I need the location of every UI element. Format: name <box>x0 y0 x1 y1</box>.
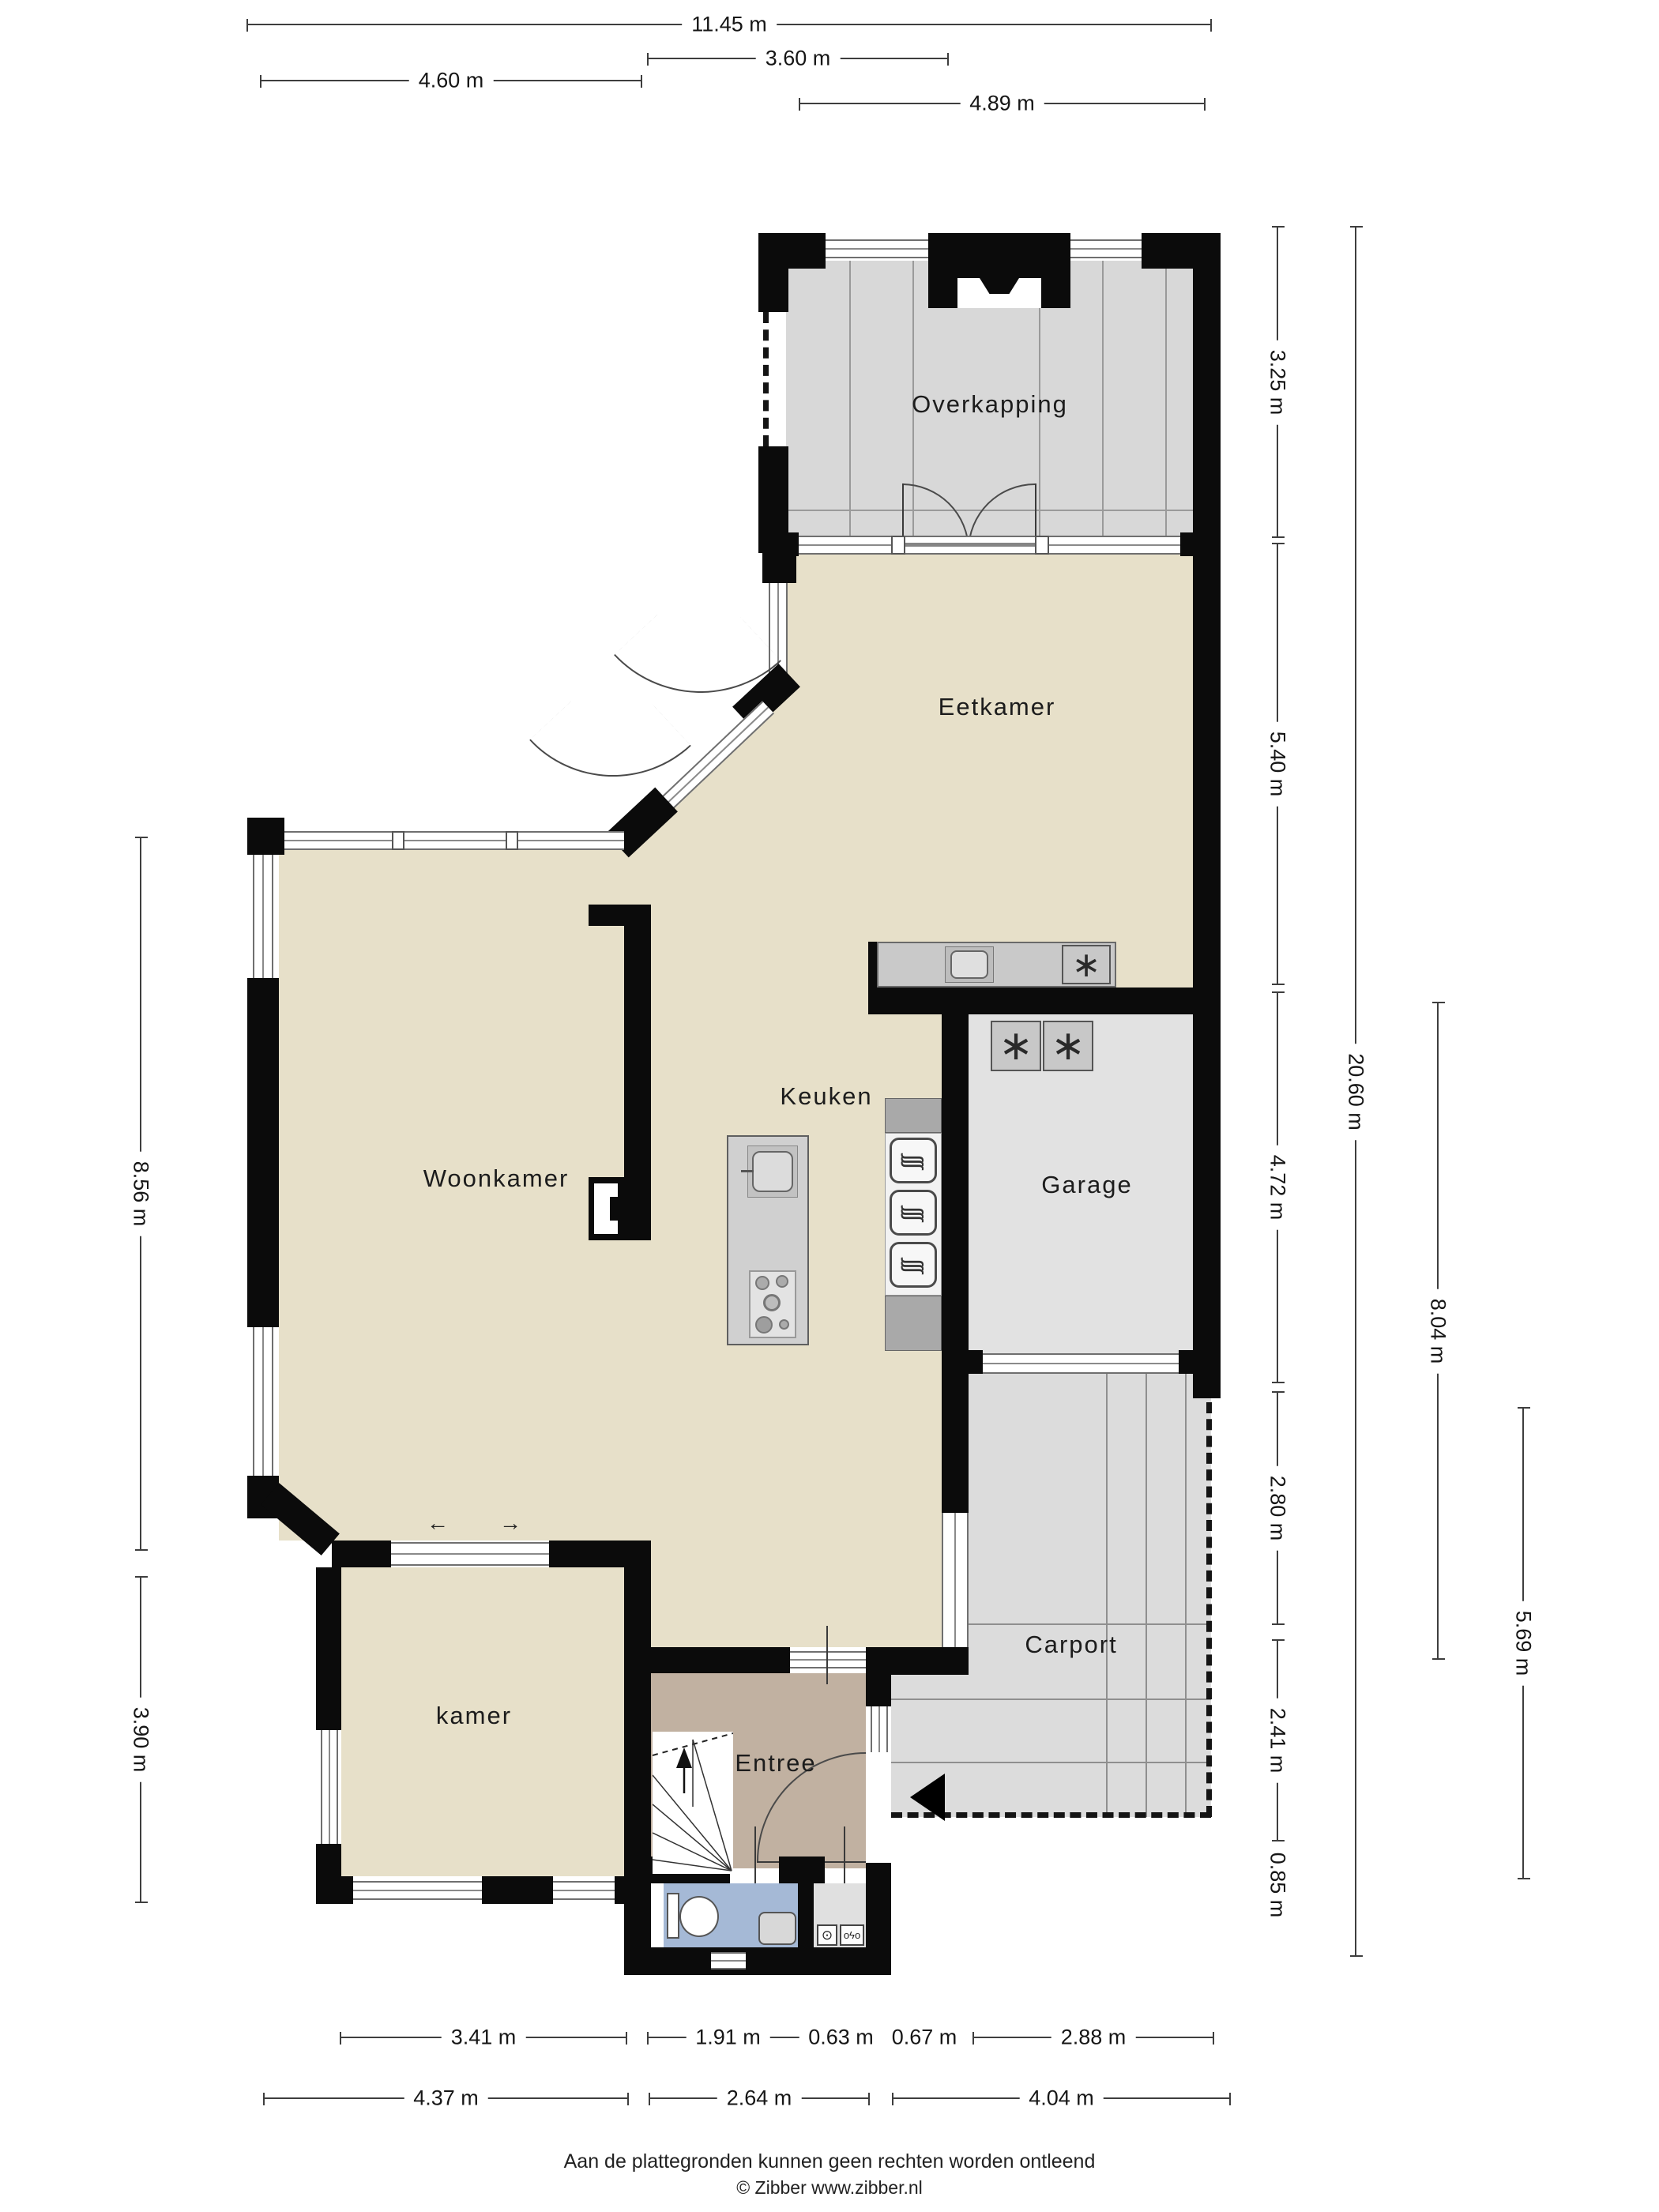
floorplan-canvas: ∗ ∫∫∫ ∫∫∫ ∫∫∫ ∗ ∗ ← → <box>0 0 1659 2212</box>
room-label-kamer: kamer <box>436 1702 512 1730</box>
paving-line <box>1145 1374 1147 1817</box>
paving-line <box>891 1762 1211 1763</box>
dim-left-856: 8.56 m <box>140 837 141 1550</box>
room-label-garage: Garage <box>1041 1171 1132 1199</box>
carport-boundary-right-dashed <box>1206 1402 1212 1817</box>
entree-south-wall <box>624 1947 891 1975</box>
appliance-cabinet-bottom <box>885 1296 942 1351</box>
kamer-south-wall-b <box>482 1876 553 1904</box>
dim-bottom-404: 4.04 m <box>893 2097 1230 2099</box>
hob-burner <box>755 1276 769 1290</box>
band-end-post-right <box>1180 532 1193 556</box>
hall-window-to-carport <box>942 1513 969 1647</box>
kamer-south-window-left <box>353 1881 482 1900</box>
dim-right-569: 5.69 m <box>1522 1408 1524 1879</box>
kamer-south-wall-a <box>316 1876 353 1904</box>
woonkamer-north-window <box>284 831 624 850</box>
island-faucet <box>741 1170 754 1172</box>
dim-bottom-264: 2.64 m <box>649 2097 869 2099</box>
staircase <box>653 1732 733 1874</box>
overkapping-window-top-right <box>1070 239 1142 258</box>
dim-bottom-191: 1.91 m <box>648 2037 808 2038</box>
room-label-carport: Carport <box>1025 1631 1117 1659</box>
eetkamer-west-post-top <box>762 544 796 583</box>
copyright-text: © Zibber www.zibber.nl <box>0 2177 1659 2199</box>
hob-burner <box>779 1319 789 1330</box>
island-sink-bowl <box>752 1151 793 1192</box>
counter-end-post <box>868 942 877 987</box>
overkapping-open-side-dashed <box>763 312 769 446</box>
band-post <box>891 536 905 555</box>
entree-north-window <box>790 1651 866 1668</box>
paving-line <box>1106 1374 1108 1817</box>
carport-floor <box>969 1374 1211 1817</box>
entree-east-window <box>871 1706 888 1752</box>
deck-line <box>849 261 851 536</box>
toilet-north-wall-b <box>779 1856 825 1883</box>
room-label-woonkamer: Woonkamer <box>423 1164 570 1193</box>
dim-right-325: 3.25 m <box>1277 227 1278 537</box>
dim-right-total: 20.60 m <box>1355 227 1356 1956</box>
paving-line <box>969 1623 1211 1625</box>
paving-line <box>1185 1374 1187 1817</box>
hob-burner <box>776 1275 788 1288</box>
extractor-icon: ∗ <box>1062 945 1111 984</box>
garage-north-wall <box>868 987 1193 1014</box>
toilet-bowl <box>679 1896 719 1937</box>
room-label-overkapping: Overkapping <box>912 390 1068 419</box>
door-tick <box>826 1626 828 1684</box>
overkapping-window-top-left <box>826 239 928 258</box>
water-meter-icon: ⊙ <box>817 1924 837 1946</box>
sliding-door-rail <box>905 543 1035 547</box>
dim-bottom-288: 2.88 m <box>973 2037 1213 2038</box>
dim-left-390: 3.90 m <box>140 1577 141 1902</box>
hob-burner <box>763 1294 781 1311</box>
dim-bottom-341: 3.41 m <box>340 2037 626 2038</box>
garage-door <box>983 1353 1179 1374</box>
electric-meter-icon: oϟo <box>840 1924 864 1946</box>
oven-icon: ∫∫∫ <box>890 1242 937 1288</box>
woonkamer-corner-nw <box>247 818 284 855</box>
appliance-cabinet-top <box>885 1098 942 1133</box>
slide-arrow-right-icon: → <box>499 1510 521 1536</box>
dim-right-085: 0.85 m <box>1277 1850 1278 1920</box>
oven-icon: ∫∫∫ <box>890 1138 937 1183</box>
dim-right-241: 2.41 m <box>1277 1640 1278 1841</box>
toilet-cistern <box>667 1893 679 1939</box>
kamer-west-wall-upper <box>316 1567 341 1730</box>
toilet-meterkast-divider <box>798 1883 814 1950</box>
fireplace-tab <box>610 1197 619 1221</box>
room-label-keuken: Keuken <box>780 1082 872 1111</box>
kamer-south-wall-c <box>615 1876 651 1904</box>
toilet-sink <box>758 1912 796 1945</box>
dryer-icon: ∗ <box>1043 1021 1093 1071</box>
dim-right-804: 8.04 m <box>1437 1003 1439 1659</box>
dim-bottom-067: 0.67 m <box>891 2037 957 2038</box>
dim-top-460: 4.60 m <box>261 80 641 81</box>
oven-icon: ∫∫∫ <box>890 1190 937 1236</box>
dim-right-280: 2.80 m <box>1277 1392 1278 1624</box>
room-label-entree: Entree <box>735 1749 816 1777</box>
dim-right-472: 4.72 m <box>1277 992 1278 1382</box>
dim-top-360: 3.60 m <box>648 58 948 59</box>
kamer-south-window-right <box>553 1881 615 1900</box>
overkapping-wall-left-lower <box>758 446 788 553</box>
entrance-arrow-icon <box>910 1774 945 1821</box>
dim-top-489: 4.89 m <box>799 103 1205 104</box>
slide-arrow-left-icon: ← <box>427 1510 449 1536</box>
window-post <box>392 831 404 850</box>
entree-east-wall-lower <box>866 1863 891 1950</box>
kamer-west-window <box>321 1730 338 1844</box>
room-label-eetkamer: Eetkamer <box>939 693 1056 721</box>
entree-east-wall-upper <box>866 1673 891 1706</box>
deck-line <box>1102 261 1104 536</box>
band-post <box>1035 536 1049 555</box>
deck-line <box>1165 261 1167 536</box>
garage-door-post-left <box>969 1350 983 1374</box>
island-hob <box>749 1270 796 1338</box>
garage-door-post-right <box>1179 1350 1193 1374</box>
toilet-door-tick <box>754 1826 756 1883</box>
kamer-sliding-door <box>391 1542 549 1566</box>
paving-line <box>891 1698 1211 1700</box>
dim-right-540: 5.40 m <box>1277 544 1278 984</box>
counter-sink-bowl <box>950 950 988 979</box>
kamer-north-wall-left <box>332 1540 391 1567</box>
dim-top-total: 11.45 m <box>247 24 1211 25</box>
toilet-vent-window <box>711 1952 746 1969</box>
outer-wall-right <box>1193 233 1221 1398</box>
woonkamer-west-wall <box>247 978 279 1327</box>
hob-burner <box>755 1316 773 1334</box>
overkapping-wall-left-upper <box>758 233 788 312</box>
dim-bottom-063: 0.63 m <box>808 2037 874 2038</box>
entree-north-wall <box>624 1647 790 1673</box>
garage-west-wall <box>942 987 969 1513</box>
window-post <box>506 831 518 850</box>
disclaimer-text: Aan de plattegronden kunnen geen rechten… <box>0 2150 1659 2173</box>
dim-bottom-437: 4.37 m <box>264 2097 628 2099</box>
hall-floor <box>650 1540 942 1647</box>
woonkamer-west-window-upper <box>253 855 273 978</box>
washer-icon: ∗ <box>991 1021 1041 1071</box>
kamer-east-wall <box>624 1540 651 1975</box>
woonkamer-west-window-lower <box>253 1327 273 1476</box>
meterkast-door-tick <box>844 1826 845 1883</box>
entree-north-corner <box>866 1647 969 1675</box>
